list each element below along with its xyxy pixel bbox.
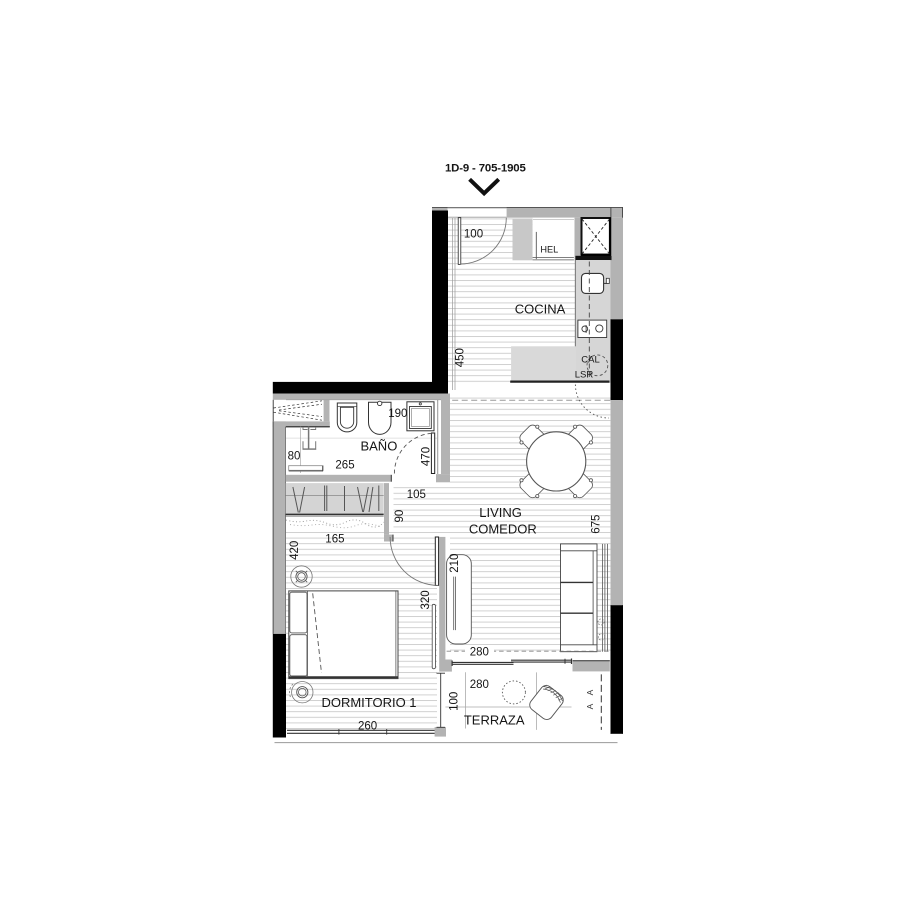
svg-text:190: 190 (388, 408, 407, 420)
svg-text:210: 210 (449, 554, 461, 573)
svg-text:675: 675 (590, 515, 602, 534)
svg-text:105: 105 (407, 489, 426, 501)
svg-text:100: 100 (464, 229, 483, 241)
svg-text:90: 90 (394, 510, 406, 523)
svg-text:DORMITORIO 1: DORMITORIO 1 (321, 695, 416, 710)
svg-text:265: 265 (335, 459, 354, 471)
svg-text:A: A (585, 689, 595, 695)
svg-text:450: 450 (455, 348, 467, 367)
svg-text:TERRAZA: TERRAZA (464, 713, 525, 728)
svg-text:BAÑO: BAÑO (360, 439, 397, 454)
svg-text:470: 470 (421, 447, 433, 466)
svg-text:280: 280 (470, 679, 489, 691)
svg-text:280: 280 (470, 647, 489, 659)
svg-text:COCINA: COCINA (515, 302, 566, 317)
svg-text:COMEDOR: COMEDOR (469, 522, 537, 537)
svg-text:165: 165 (325, 533, 344, 545)
svg-text:CAL: CAL (581, 355, 599, 366)
svg-text:LSR: LSR (575, 370, 594, 381)
svg-text:1D-9 - 705-1905: 1D-9 - 705-1905 (445, 162, 527, 174)
svg-text:HEL: HEL (540, 245, 558, 255)
svg-text:80: 80 (288, 450, 301, 462)
svg-text:LIVING: LIVING (479, 505, 522, 520)
svg-text:320: 320 (420, 590, 432, 609)
svg-text:100: 100 (448, 692, 460, 711)
svg-text:420: 420 (289, 541, 301, 560)
svg-text:A: A (585, 703, 595, 709)
